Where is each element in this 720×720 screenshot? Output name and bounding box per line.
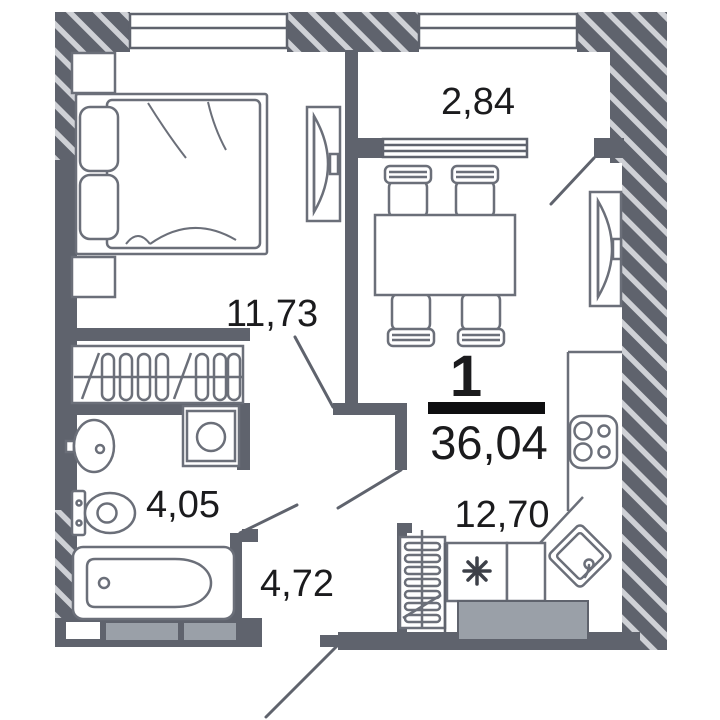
bedroom-tv-icon bbox=[307, 107, 340, 221]
bedroom-window bbox=[130, 14, 287, 48]
floor-plan-canvas: 2,84 11,73 4,05 4,72 12,70 1 36,04 bbox=[0, 0, 720, 720]
room-label: 12,70 bbox=[454, 494, 549, 536]
room-label: 2,84 bbox=[441, 81, 515, 123]
dining-set bbox=[375, 166, 515, 346]
stove-icon bbox=[570, 416, 617, 468]
bathroom-door-swing bbox=[240, 505, 297, 533]
balcony-top-window bbox=[419, 14, 577, 48]
chair-icon bbox=[388, 294, 434, 346]
bathtub-icon bbox=[73, 547, 234, 619]
bed-icon bbox=[76, 94, 267, 254]
radiator-icon bbox=[400, 530, 445, 628]
balcony-door-swing bbox=[551, 158, 594, 204]
kitchen-sink-icon bbox=[547, 523, 612, 588]
room-label: 4,72 bbox=[260, 563, 334, 605]
entrance-door-swing bbox=[266, 646, 337, 717]
nightstand-icon bbox=[72, 53, 115, 93]
bedroom-furniture bbox=[72, 53, 340, 297]
kitchen-units bbox=[447, 543, 545, 601]
kitchen-slab bbox=[458, 601, 588, 640]
dishwasher-asterisk-icon bbox=[464, 558, 490, 584]
wardrobe-icon bbox=[72, 346, 243, 403]
washing-machine-icon bbox=[183, 406, 239, 466]
chair-icon bbox=[385, 166, 431, 217]
rooms-count: 1 bbox=[450, 344, 482, 409]
nightstand-icon bbox=[72, 257, 115, 297]
wall-insets bbox=[66, 622, 236, 640]
balcony-partition-window bbox=[383, 139, 527, 157]
pillow bbox=[80, 107, 118, 171]
apartment-summary: 1 36,04 bbox=[428, 344, 548, 469]
blanket bbox=[107, 100, 260, 248]
total-area: 36,04 bbox=[430, 416, 548, 469]
room-label: 11,73 bbox=[226, 293, 318, 335]
dining-table-icon bbox=[375, 215, 515, 295]
summary-divider bbox=[428, 402, 545, 414]
chair-icon bbox=[452, 166, 498, 217]
bedroom-door-swing bbox=[295, 337, 333, 407]
living-tv-icon bbox=[590, 192, 621, 306]
floor-plan: 2,84 11,73 4,05 4,72 12,70 1 36,04 bbox=[0, 0, 720, 720]
living-door-swing bbox=[338, 470, 401, 508]
chair-icon bbox=[458, 294, 504, 346]
room-label: 4,05 bbox=[146, 484, 220, 526]
toilet-icon bbox=[72, 491, 135, 535]
pillow bbox=[80, 175, 118, 239]
